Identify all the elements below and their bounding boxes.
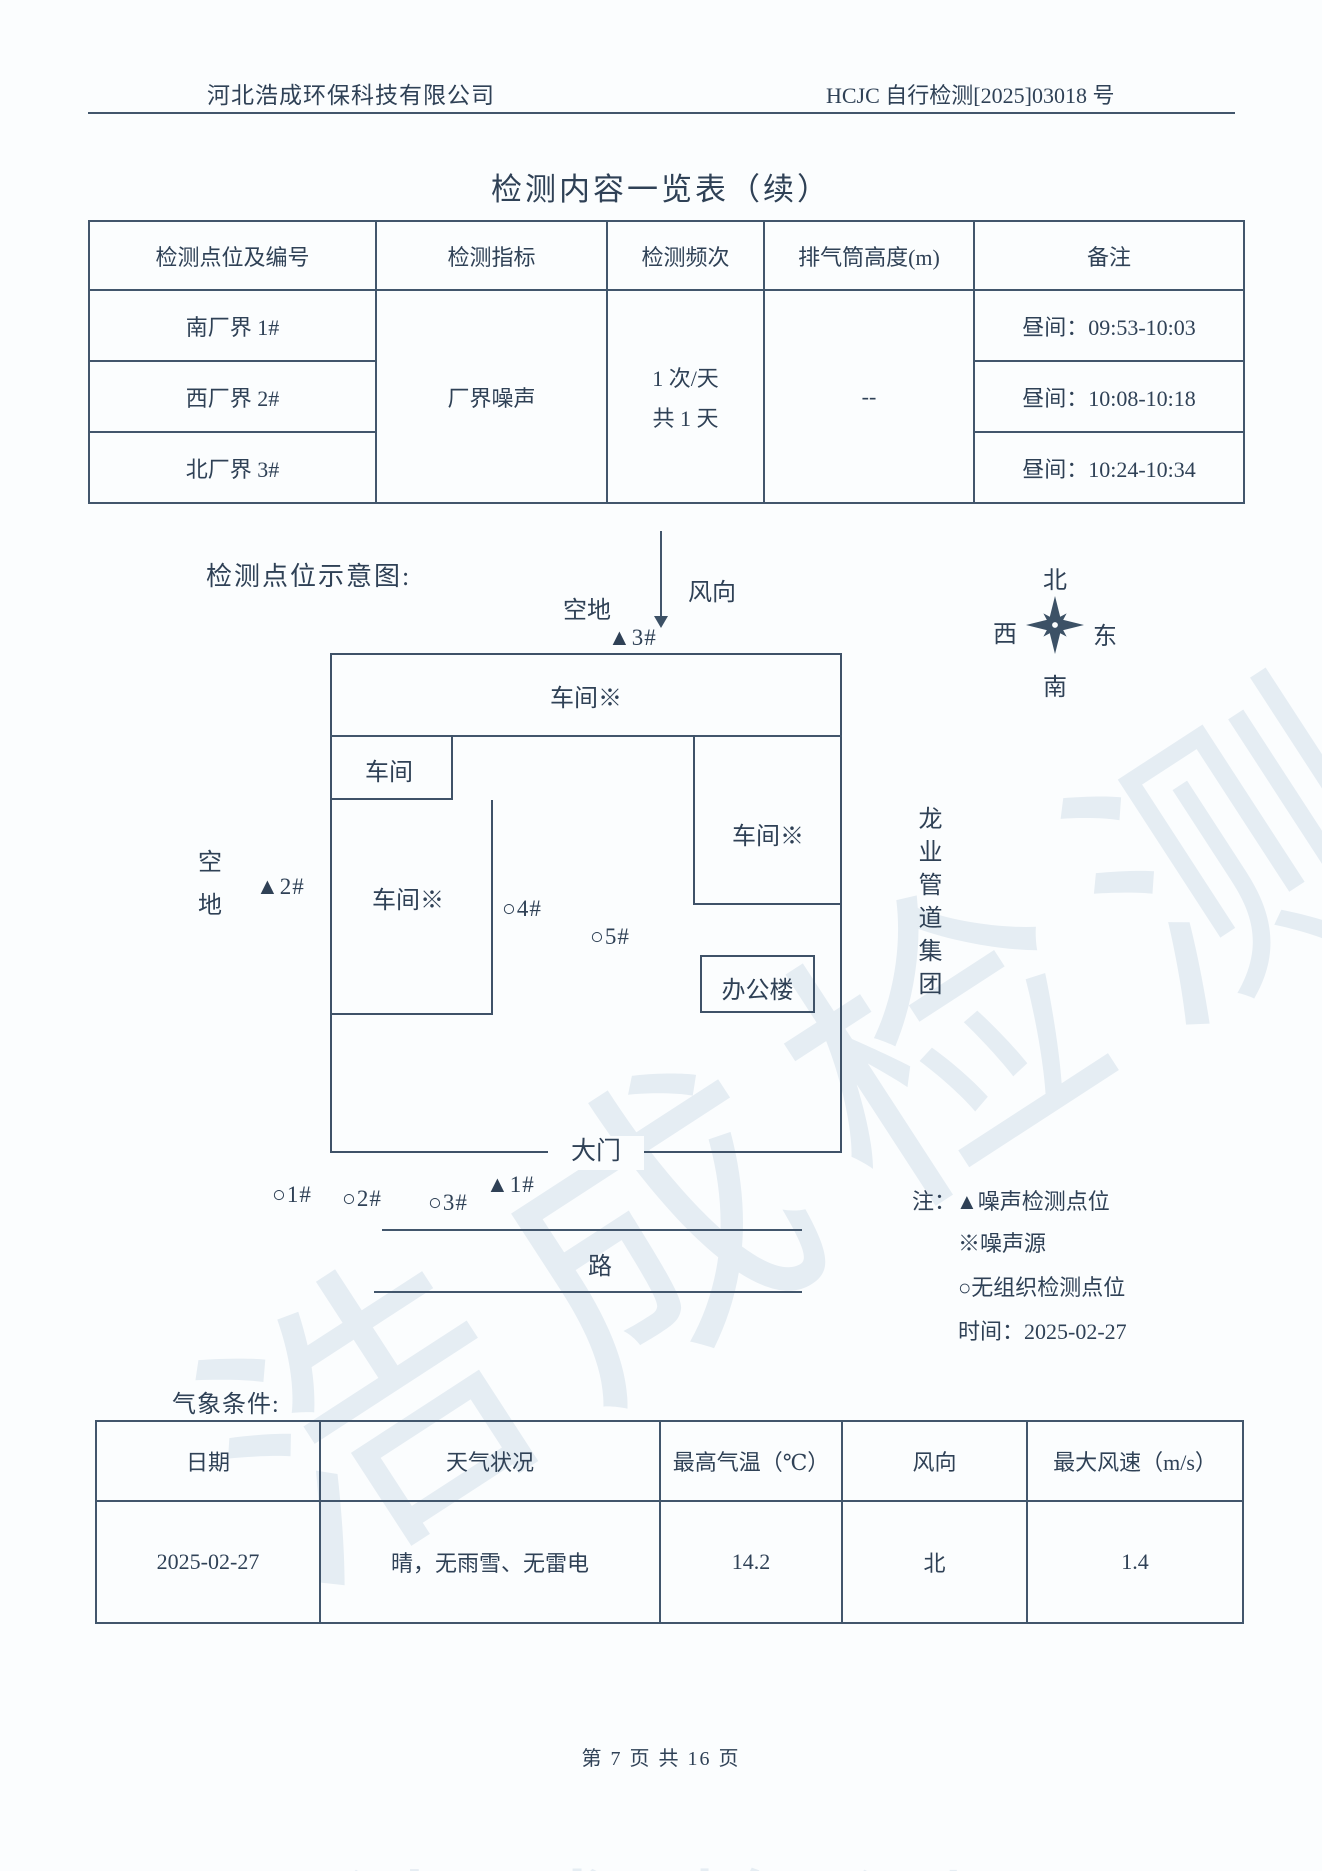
indicator-cell: 厂界噪声 [376, 290, 607, 503]
open-space-top-label: 空地 [563, 590, 611, 625]
weather-wind-direction-cell: 北 [842, 1501, 1027, 1623]
diagram-section-label: 检测点位示意图: [206, 556, 411, 593]
workshop-small-label: 车间 [330, 752, 448, 787]
fugitive-point-5-marker: ○5# [590, 924, 630, 950]
compass-east-label: 东 [1093, 616, 1117, 651]
frequency-cell: 1 次/天 共 1 天 [607, 290, 764, 503]
open-space-left-char2: 地 [198, 885, 222, 920]
weather-col-condition: 天气状况 [320, 1421, 660, 1501]
legend-prefix: 注： [912, 1189, 956, 1214]
compass: 北 西 东 南 [993, 560, 1117, 702]
point-cell: 西厂界 2# [89, 361, 376, 432]
footer-page-number: 第 7 页 共 16 页 [0, 1742, 1322, 1771]
col-header-stack-height: 排气筒高度(m) [764, 221, 974, 290]
weather-table: 日期 天气状况 最高气温（℃） 风向 最大风速（m/s） 2025-02-27 … [95, 1420, 1244, 1624]
header-report-number: HCJC 自行检测[2025]03018 号 [826, 78, 1114, 110]
col-header-remark: 备注 [974, 221, 1244, 290]
legend-time: 时间：2025-02-27 [958, 1314, 1127, 1346]
weather-date-cell: 2025-02-27 [96, 1501, 320, 1623]
frequency-line2: 共 1 天 [612, 401, 759, 433]
open-space-left-label: 空 地 [198, 842, 222, 920]
fugitive-point-4-marker: ○4# [502, 896, 542, 922]
weather-col-date: 日期 [96, 1421, 320, 1501]
weather-max-temp-cell: 14.2 [660, 1501, 842, 1623]
road-lower-line [374, 1291, 802, 1293]
point-cell: 南厂界 1# [89, 290, 376, 361]
col-header-indicator: 检测指标 [376, 221, 607, 290]
legend: 注：▲噪声检测点位 ※噪声源 ○无组织检测点位 时间：2025-02-27 [912, 1184, 1127, 1346]
remark-cell: 昼间：10:24-10:34 [974, 432, 1244, 503]
noise-point-1-marker: ▲1# [486, 1172, 535, 1198]
header-rule [88, 112, 1235, 114]
weather-section-label: 气象条件: [172, 1384, 280, 1419]
wind-direction-arrow [660, 531, 662, 617]
weather-col-wind-direction: 风向 [842, 1421, 1027, 1501]
header-company: 河北浩成环保科技有限公司 [207, 76, 495, 110]
compass-south-label: 南 [993, 667, 1117, 702]
weather-col-max-wind-speed: 最大风速（m/s） [1027, 1421, 1243, 1501]
office-building-label: 办公楼 [700, 970, 815, 1005]
col-header-point: 检测点位及编号 [89, 221, 376, 290]
road-label: 路 [588, 1246, 612, 1281]
compass-rose-icon [1026, 596, 1084, 654]
fugitive-point-1-marker: ○1# [272, 1182, 312, 1208]
fugitive-point-3-marker: ○3# [428, 1190, 468, 1216]
weather-condition-cell: 晴，无雨雪、无雷电 [320, 1501, 660, 1623]
report-page: 浩成检测 浩成检测 河北浩成环保科技有限公司 HCJC 自行检测[2025]03… [0, 0, 1322, 1871]
legend-noise-point: ▲噪声检测点位 [956, 1189, 1110, 1214]
workshop-right-label: 车间※ [732, 816, 804, 851]
bottom-edge-watermark: 浩成检测 [340, 1833, 1020, 1871]
frequency-line1: 1 次/天 [612, 361, 759, 393]
remark-cell: 昼间：09:53-10:03 [974, 290, 1244, 361]
workshop-left-label: 车间※ [372, 880, 444, 915]
monitoring-content-table: 检测点位及编号 检测指标 检测频次 排气筒高度(m) 备注 南厂界 1# 厂界噪… [88, 220, 1245, 504]
gate-label: 大门 [548, 1136, 644, 1170]
open-space-left-char1: 空 [198, 842, 222, 877]
compass-north-label: 北 [993, 560, 1117, 595]
weather-max-wind-speed-cell: 1.4 [1027, 1501, 1243, 1623]
fugitive-point-2-marker: ○2# [342, 1186, 382, 1212]
remark-cell: 昼间：10:08-10:18 [974, 361, 1244, 432]
noise-point-2-marker: ▲2# [256, 874, 305, 900]
wind-label: 风向 [688, 572, 736, 607]
legend-noise-source: ※噪声源 [958, 1226, 1127, 1258]
neighbor-company-label: 龙业管道集团 [910, 806, 945, 1021]
workshop-top-label: 车间※ [330, 678, 842, 713]
legend-fugitive-point: ○无组织检测点位 [958, 1270, 1127, 1302]
point-cell: 北厂界 3# [89, 432, 376, 503]
compass-west-label: 西 [993, 614, 1017, 649]
stack-height-cell: -- [764, 290, 974, 503]
col-header-frequency: 检测频次 [607, 221, 764, 290]
road-upper-line [382, 1229, 802, 1231]
noise-point-3-marker: ▲3# [608, 625, 657, 651]
page-title: 检测内容一览表（续） [0, 164, 1322, 209]
weather-col-max-temp: 最高气温（℃） [660, 1421, 842, 1501]
